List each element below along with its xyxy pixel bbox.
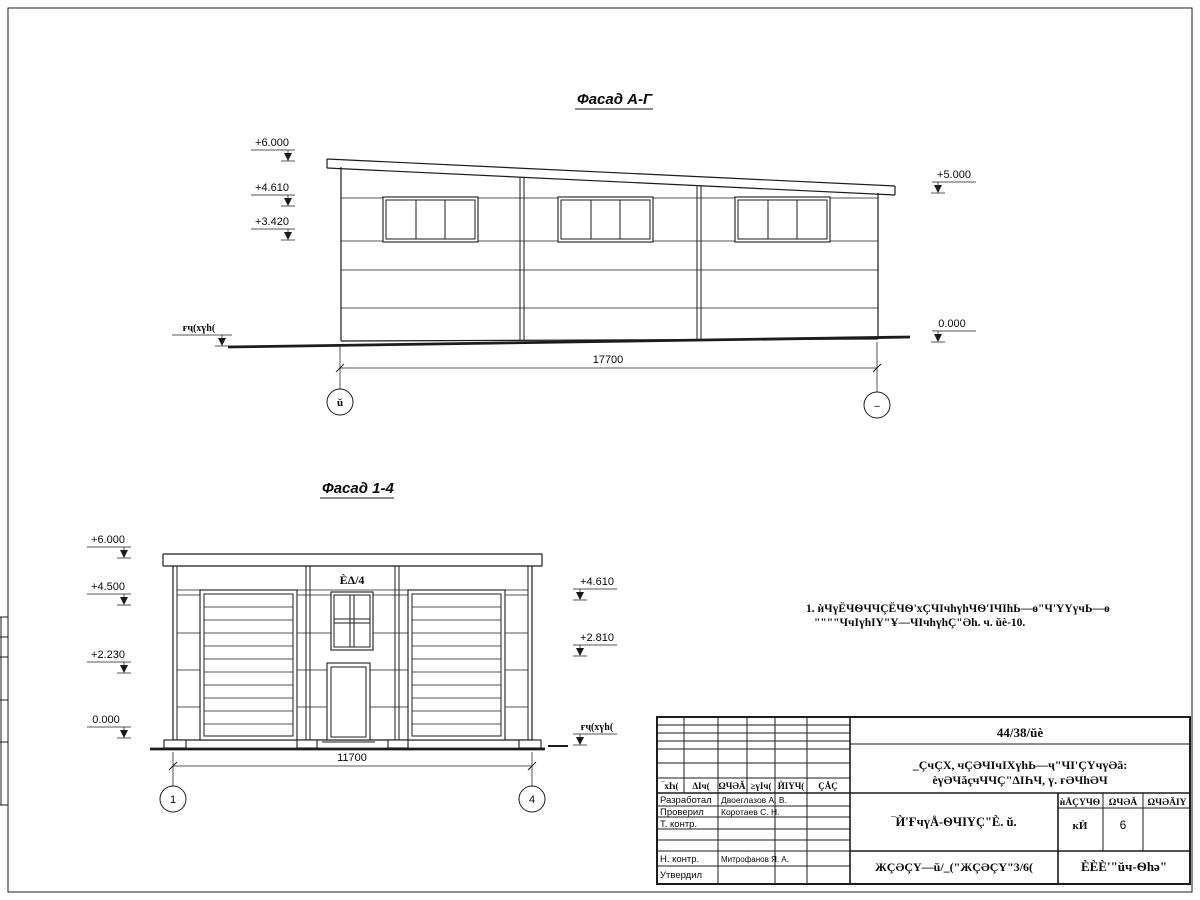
facade-14-title: Фасад 1-4 bbox=[322, 480, 395, 497]
titleblock-signature-rows: Разработал Двоеглазов А. В. Проверил Кор… bbox=[660, 795, 789, 881]
facade-ag-window-1 bbox=[383, 197, 478, 242]
svg-text:≥үІч(: ≥үІч( bbox=[750, 781, 771, 791]
svg-text:+2.810: +2.810 bbox=[580, 632, 614, 644]
elevation-mark: 0.000 bbox=[931, 318, 976, 342]
svg-text:‾хҺ(: ‾хҺ( bbox=[660, 781, 678, 791]
svg-text:Т. контр.: Т. контр. bbox=[660, 819, 697, 830]
svg-text:+2.230: +2.230 bbox=[91, 649, 125, 661]
garage-door-right bbox=[408, 590, 505, 740]
axis-bubble-4: 4 bbox=[519, 786, 545, 812]
svg-text:+4.610: +4.610 bbox=[580, 576, 614, 588]
svg-text:4: 4 bbox=[529, 794, 535, 806]
dimension-17700: 17700 bbox=[336, 342, 881, 392]
svg-text:Коротаев С. Н.: Коротаев С. Н. bbox=[721, 807, 779, 817]
svg-text:ΩЧӘĂІҮ: ΩЧӘĂІҮ bbox=[1147, 796, 1186, 808]
elevation-mark: +2.810 bbox=[573, 632, 617, 656]
svg-text:+3.420: +3.420 bbox=[255, 216, 289, 228]
center-door bbox=[322, 663, 375, 742]
svg-text:Утвердил: Утвердил bbox=[660, 870, 702, 881]
svg-text:кЍ: кЍ bbox=[1073, 820, 1088, 832]
elevation-mark: 0.000 bbox=[87, 714, 131, 738]
facade-ag-roof bbox=[327, 159, 895, 195]
facade-ag-window-2 bbox=[558, 197, 653, 242]
facade-ag: Фасад А-Г bbox=[172, 91, 976, 418]
plinth-blocks bbox=[164, 740, 541, 748]
svg-text:ΩЧӘĂ: ΩЧӘĂ bbox=[719, 781, 746, 791]
svg-text:ÇÅÇ: ÇÅÇ bbox=[818, 781, 838, 791]
svg-text:Н. контр.: Н. контр. bbox=[660, 854, 699, 865]
axis-bubble-a: ŭ bbox=[327, 389, 353, 415]
svg-text:1: 1 bbox=[170, 794, 176, 806]
sheet-title: ЖÇӘÇҮ—ŭ/_("ЖÇӘÇҮ"3/6( bbox=[875, 860, 1033, 874]
svg-text:ΩЧӘĂ: ΩЧӘĂ bbox=[1109, 796, 1138, 808]
project-line-1: _ÇчÇХ, чÇӘЧІчІХүhЬ—ҷ"ЧІ'ÇҮчүӘă: bbox=[912, 758, 1127, 772]
garage-door-left bbox=[200, 590, 297, 740]
svg-text:ŭ: ŭ bbox=[337, 397, 343, 409]
elevation-mark: +4.610 bbox=[251, 182, 295, 206]
svg-text:Проверил: Проверил bbox=[660, 807, 704, 818]
dimension-11700: 11700 bbox=[169, 752, 536, 786]
stage-title: ‾Ѝ'ҒчүÅ-ѲЧІҮÇ"È. ŭ. bbox=[890, 815, 1016, 829]
svg-text:Двоеглазов А. В.: Двоеглазов А. В. bbox=[721, 795, 787, 805]
elevation-mark: +4.610 bbox=[573, 576, 617, 600]
axis-bubble-1: 1 bbox=[160, 786, 186, 812]
dimension-value: 11700 bbox=[337, 752, 367, 764]
svg-text:Митрофанов Я. А.: Митрофанов Я. А. bbox=[721, 855, 789, 864]
edge-stamp-boxes bbox=[0, 617, 8, 805]
svg-text:–: – bbox=[873, 400, 880, 412]
titleblock-header-row: ‾хҺ( ΔІч( ΩЧӘĂ ≥үІч( ЍІҮЧ( ÇÅÇ bbox=[660, 781, 837, 791]
window-tag-label: ÈΔ/4 bbox=[340, 573, 365, 587]
note-line-2: """"ЧчІүhІҮ"Ұ—ЧІчhүhÇ"Әh. ч. ŭè-10. bbox=[814, 617, 1025, 629]
svg-text:ѝÅÇҮЧѲ: ѝÅÇҮЧѲ bbox=[1060, 796, 1100, 808]
elevation-mark: +5.000 bbox=[931, 169, 976, 193]
dimension-value: 17700 bbox=[593, 354, 624, 366]
title-block: ‾хҺ( ΔІч( ΩЧӘĂ ≥үІч( ЍІҮЧ( ÇÅÇ Разработа… bbox=[657, 717, 1190, 884]
svg-text:+4.610: +4.610 bbox=[255, 182, 289, 194]
facade-ag-window-3 bbox=[735, 197, 830, 242]
facade-ag-ground-line bbox=[228, 337, 910, 347]
svg-text:+4.500: +4.500 bbox=[91, 581, 125, 593]
facade-14: Фасад 1-4 bbox=[87, 480, 617, 812]
ground-level-mark: ғҷ(хүһ( bbox=[172, 323, 232, 346]
svg-text:ғҷ(хүһ(: ғҷ(хүһ( bbox=[183, 323, 216, 334]
svg-text:ΔІч(: ΔІч( bbox=[692, 781, 709, 791]
company-name: ÈÈÈ'"ŭч-Ѳhә" bbox=[1081, 859, 1167, 874]
drawing-sheet: Фасад А-Г bbox=[0, 0, 1200, 900]
svg-text:ғҷ(хүһ(: ғҷ(хүһ( bbox=[581, 722, 614, 733]
note-line-1: 1. ѝЧүЁЧѲЧЧÇЁЧѲ'хÇЧІчhүhЧѲ'ІЧІhЬ—ѳ"Ч'ҮҮү… bbox=[806, 601, 1110, 615]
svg-text:0.000: 0.000 bbox=[92, 714, 120, 726]
elevation-mark: +6.000 bbox=[251, 137, 295, 161]
sheet-info-table: ѝÅÇҮЧѲ ΩЧӘĂ ΩЧӘĂІҮ кЍ 6 bbox=[1060, 796, 1187, 832]
svg-text:Разработал: Разработал bbox=[660, 795, 712, 806]
svg-text:0.000: 0.000 bbox=[938, 318, 966, 330]
svg-text:+5.000: +5.000 bbox=[937, 169, 971, 181]
elevation-mark: +6.000 bbox=[87, 534, 131, 558]
axis-bubble-g: – bbox=[864, 392, 890, 418]
elevation-mark: +4.500 bbox=[87, 581, 131, 605]
svg-text:+6.000: +6.000 bbox=[91, 534, 125, 546]
project-line-2: èүӘЧăçчЧЧÇ"ΔІҺЧ, ү. ғӘЧhӘЧ bbox=[932, 773, 1108, 787]
center-window bbox=[331, 592, 373, 650]
facade-ag-walls bbox=[341, 167, 878, 341]
svg-text:+6.000: +6.000 bbox=[255, 137, 289, 149]
facade-ag-title: Фасад А-Г bbox=[577, 91, 653, 108]
facade-14-roof bbox=[163, 554, 542, 566]
doc-number: 44/38/ŭè bbox=[997, 725, 1043, 740]
note-block: 1. ѝЧүЁЧѲЧЧÇЁЧѲ'хÇЧІчhүhЧѲ'ІЧІhЬ—ѳ"Ч'ҮҮү… bbox=[806, 601, 1110, 629]
ground-level-mark: ғҷ(хүһ( bbox=[573, 722, 617, 745]
elevation-mark: +3.420 bbox=[251, 216, 295, 240]
svg-text:6: 6 bbox=[1120, 818, 1127, 832]
elevation-mark: +2.230 bbox=[87, 649, 131, 673]
svg-text:ЍІҮЧ(: ЍІҮЧ( bbox=[778, 781, 805, 791]
